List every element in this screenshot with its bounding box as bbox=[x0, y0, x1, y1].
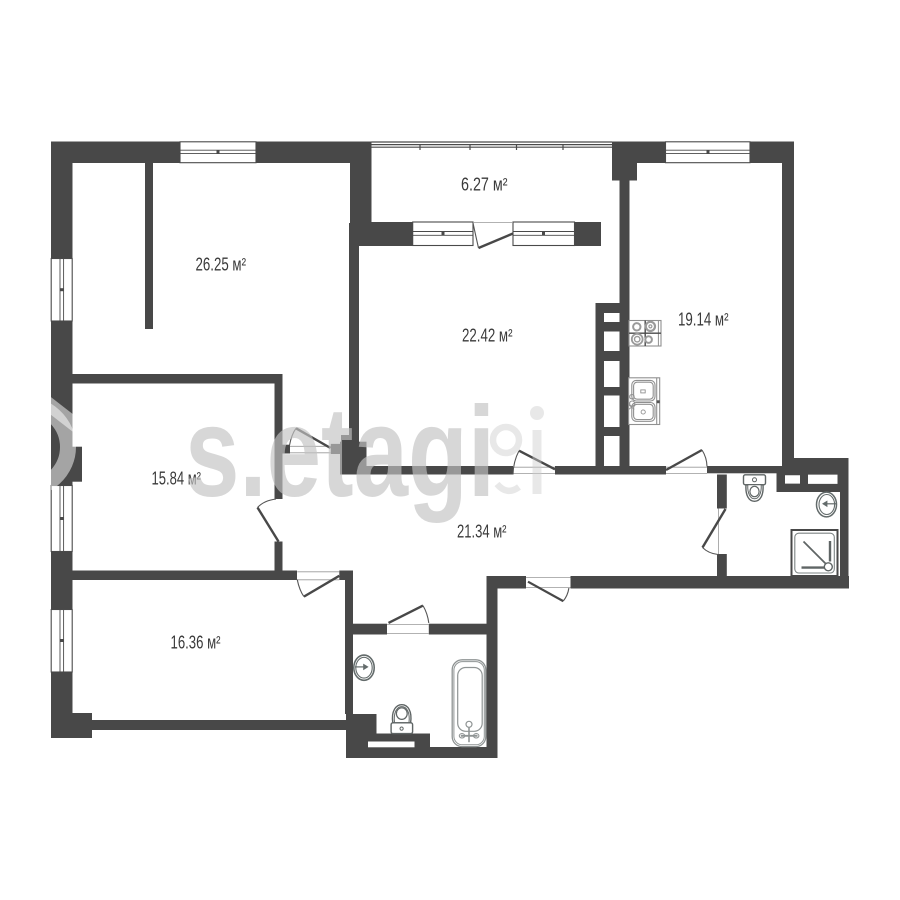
svg-text:26.25 м²: 26.25 м² bbox=[196, 255, 247, 275]
svg-text:21.34 м²: 21.34 м² bbox=[457, 522, 507, 542]
svg-text:22.42 м²: 22.42 м² bbox=[462, 326, 513, 346]
svg-text:19.14 м²: 19.14 м² bbox=[678, 310, 729, 330]
svg-text:s.etagi: s.etagi bbox=[185, 381, 495, 524]
svg-text:6.27 м²: 6.27 м² bbox=[461, 175, 508, 195]
svg-text:16.36 м²: 16.36 м² bbox=[171, 633, 221, 653]
